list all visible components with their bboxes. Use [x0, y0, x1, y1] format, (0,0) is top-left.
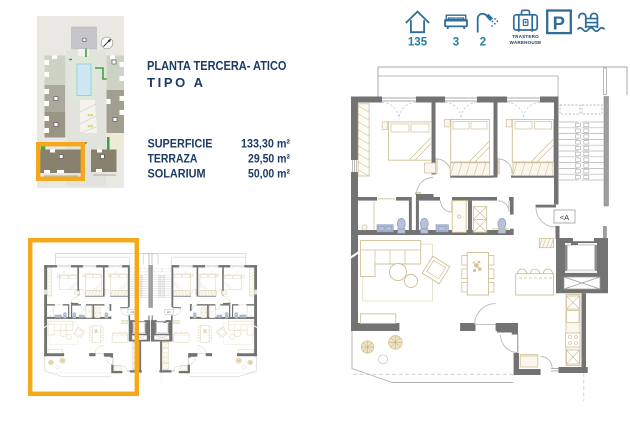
svg-text:3: 3: [453, 37, 459, 49]
svg-text:SUPERFICIE: SUPERFICIE: [148, 137, 213, 151]
svg-text:PLANTA TERCERA- ATICO: PLANTA TERCERA- ATICO: [147, 58, 287, 73]
svg-text:WAREHOUSE: WAREHOUSE: [510, 40, 542, 45]
svg-text:SOLARIUM: SOLARIUM: [148, 167, 206, 181]
svg-text:TRASTERO: TRASTERO: [512, 34, 539, 39]
svg-text:29,50 m²: 29,50 m²: [248, 152, 290, 166]
svg-text:P: P: [553, 12, 565, 33]
svg-text:133,30 m²: 133,30 m²: [241, 137, 290, 151]
svg-text:50,00 m²: 50,00 m²: [248, 167, 290, 181]
svg-text:135: 135: [408, 37, 428, 49]
svg-text:TERRAZA: TERRAZA: [148, 152, 198, 166]
svg-text:2: 2: [480, 37, 486, 49]
